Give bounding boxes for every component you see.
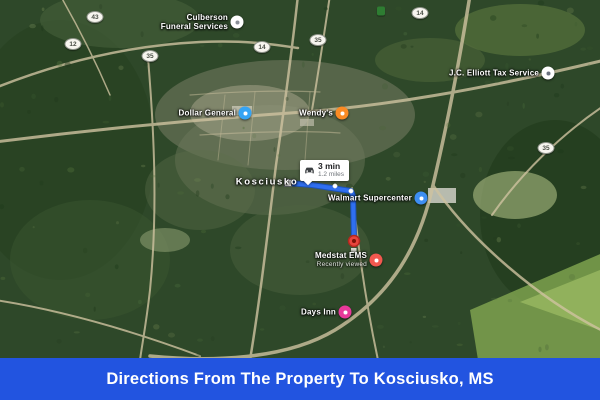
banner-title: Directions From The Property To Kosciusk… — [106, 370, 493, 389]
caption-banner: Directions From The Property To Kosciusk… — [0, 358, 600, 400]
map-overlay: Kosciusko 3 min 1.2 miles CulbersonFuner… — [0, 0, 600, 358]
highway-shield-35: 35 — [142, 50, 159, 62]
highway-shield-35: 35 — [538, 142, 555, 154]
poi-marker-culberson-funeral-services[interactable] — [231, 16, 244, 29]
route-info-text: 3 min 1.2 miles — [318, 162, 344, 179]
poi-label-culberson-funeral-services: CulbersonFuneral Services — [161, 13, 228, 31]
medical-icon — [374, 258, 378, 262]
highway-shield-12: 12 — [65, 38, 82, 50]
city-label-kosciusko: Kosciusko — [236, 177, 298, 188]
highway-shield-43: 43 — [87, 11, 104, 23]
restaurant-icon — [340, 111, 344, 115]
poi-label-dollar-general: Dollar General — [179, 109, 237, 118]
poi-label-jc-elliott-tax-service: J.C. Elliott Tax Service — [449, 69, 539, 78]
poi-label-days-inn: Days Inn — [301, 308, 336, 317]
parkway-sign — [377, 7, 385, 16]
shopping-icon — [243, 111, 247, 115]
route-infobox[interactable]: 3 min 1.2 miles — [300, 160, 349, 181]
highway-shield-14: 14 — [412, 7, 429, 19]
hotel-icon — [343, 310, 347, 314]
business-icon — [546, 71, 550, 75]
route-duration: 3 min — [318, 162, 344, 170]
poi-marker-jc-elliott-tax-service[interactable] — [542, 67, 555, 80]
poi-marker-walmart-supercenter[interactable] — [415, 192, 428, 205]
poi-marker-wendys[interactable] — [336, 107, 349, 120]
map[interactable]: Kosciusko 3 min 1.2 miles CulbersonFuner… — [0, 0, 600, 358]
poi-label-walmart-supercenter: Walmart Supercenter — [328, 194, 412, 203]
poi-marker-medstat-ems[interactable] — [370, 254, 383, 267]
route-distance: 1.2 miles — [318, 171, 344, 179]
poi-label-medstat-ems: Medstat EMSRecently viewed — [315, 251, 367, 269]
poi-label-wendys: Wendy's — [299, 109, 333, 118]
poi-marker-dollar-general[interactable] — [239, 107, 252, 120]
shopping-icon — [419, 196, 423, 200]
poi-marker-days-inn[interactable] — [339, 306, 352, 319]
funeral-home-icon — [235, 20, 239, 24]
highway-shield-35: 35 — [310, 34, 327, 46]
page: Kosciusko 3 min 1.2 miles CulbersonFuner… — [0, 0, 600, 400]
highway-shield-14: 14 — [254, 41, 271, 53]
car-icon — [304, 166, 315, 176]
